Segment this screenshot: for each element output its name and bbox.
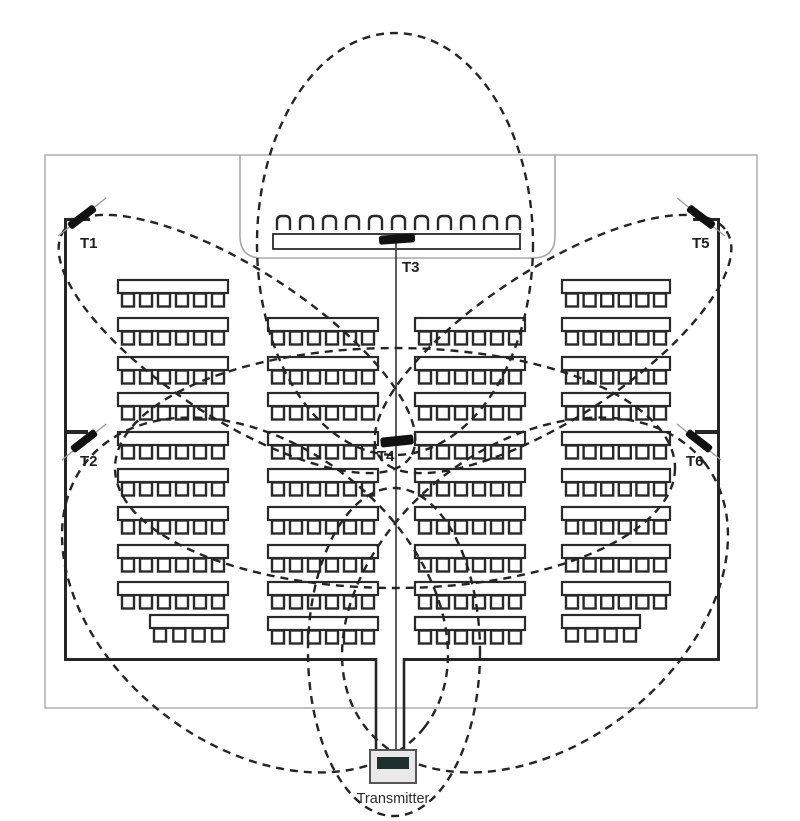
- seat-chair: [362, 332, 374, 345]
- seat-chair: [455, 596, 467, 609]
- seat-chair: [455, 521, 467, 534]
- seat-chair: [601, 332, 613, 345]
- stage-chair: [300, 216, 313, 230]
- seat-chair: [122, 446, 134, 459]
- seat-chair: [419, 371, 431, 384]
- seat-desk: [562, 507, 670, 520]
- seat-chair: [619, 407, 631, 420]
- seat-chair: [308, 483, 320, 496]
- seat-chair: [585, 629, 597, 642]
- seat-chair: [619, 371, 631, 384]
- seat-chair: [308, 559, 320, 572]
- seat-chair: [419, 559, 431, 572]
- seat-chair: [272, 596, 284, 609]
- seat-chair: [326, 521, 338, 534]
- seat-chair: [173, 629, 185, 642]
- seat-chair: [194, 483, 206, 496]
- seat-chair: [290, 371, 302, 384]
- seat-desk: [118, 318, 228, 331]
- seat-chair: [158, 407, 170, 420]
- antenna-t3-label: T3: [402, 259, 420, 276]
- antenna-t6-label: T6: [686, 453, 704, 470]
- seat-chair: [654, 407, 666, 420]
- seat-chair: [491, 596, 503, 609]
- seat-chair: [455, 483, 467, 496]
- seat-desk: [118, 393, 228, 406]
- seat-chair: [566, 294, 578, 307]
- seat-chair: [584, 483, 596, 496]
- seat-chair: [308, 407, 320, 420]
- seat-chair: [154, 629, 166, 642]
- seat-chair: [158, 446, 170, 459]
- seat-chair: [122, 407, 134, 420]
- seat-chair: [140, 483, 152, 496]
- seat-chair: [419, 483, 431, 496]
- seat-chair: [601, 596, 613, 609]
- seat-chair: [584, 332, 596, 345]
- seat-desk: [268, 432, 378, 445]
- seat-chair: [605, 629, 617, 642]
- seat-chair: [509, 559, 521, 572]
- seat-chair: [176, 332, 188, 345]
- seat-chair: [272, 407, 284, 420]
- seat-chair: [122, 371, 134, 384]
- antenna-t2-label: T2: [80, 453, 98, 470]
- transmitter-label: Transmitter: [357, 791, 430, 807]
- seat-chair: [619, 596, 631, 609]
- seat-chair: [619, 559, 631, 572]
- seat-chair: [473, 332, 485, 345]
- seat-chair: [473, 559, 485, 572]
- seat-chair: [636, 332, 648, 345]
- stage-chair: [346, 216, 359, 230]
- antenna-mount-t2: [64, 430, 88, 434]
- seat-chair: [308, 521, 320, 534]
- seat-chair: [158, 521, 170, 534]
- seat-chair: [140, 559, 152, 572]
- seat-chair: [437, 521, 449, 534]
- seat-chair: [654, 521, 666, 534]
- seat-chair: [491, 521, 503, 534]
- seat-chair: [326, 559, 338, 572]
- seat-desk: [562, 545, 670, 558]
- stage-chair: [392, 216, 405, 230]
- seat-chair: [473, 483, 485, 496]
- seat-desk: [562, 469, 670, 482]
- seat-chair: [437, 371, 449, 384]
- seat-chair: [308, 596, 320, 609]
- seat-chair: [419, 596, 431, 609]
- seat-chair: [455, 559, 467, 572]
- seat-chair: [158, 559, 170, 572]
- seat-chair: [491, 559, 503, 572]
- seat-chair: [140, 446, 152, 459]
- room-wall-bottom-right: [404, 658, 720, 661]
- stage-chair: [277, 216, 290, 230]
- seat-desk: [415, 507, 525, 520]
- seat-desk: [562, 582, 670, 595]
- seat-chair: [290, 631, 302, 644]
- seat-chair: [194, 446, 206, 459]
- stage-chair: [438, 216, 451, 230]
- seat-chair: [122, 521, 134, 534]
- seat-chair: [326, 596, 338, 609]
- seat-chair: [272, 483, 284, 496]
- seat-chair: [509, 483, 521, 496]
- seat-chair: [654, 446, 666, 459]
- seat-chair: [601, 294, 613, 307]
- seat-chair: [176, 483, 188, 496]
- seat-chair: [584, 521, 596, 534]
- seat-chair: [158, 332, 170, 345]
- seat-chair: [158, 483, 170, 496]
- seat-chair: [566, 521, 578, 534]
- seat-chair: [509, 596, 521, 609]
- seat-desk: [268, 617, 378, 630]
- seat-chair: [212, 521, 224, 534]
- seat-chair: [272, 631, 284, 644]
- seat-desk: [415, 545, 525, 558]
- seat-chair: [584, 294, 596, 307]
- seat-chair: [419, 631, 431, 644]
- seat-chair: [619, 332, 631, 345]
- seat-chair: [140, 294, 152, 307]
- seat-chair: [212, 483, 224, 496]
- seat-chair: [158, 371, 170, 384]
- seat-desk: [562, 615, 640, 628]
- seat-chair: [654, 294, 666, 307]
- seat-chair: [566, 332, 578, 345]
- seat-chair: [566, 446, 578, 459]
- seat-chair: [122, 332, 134, 345]
- seat-chair: [455, 446, 467, 459]
- seat-chair: [473, 521, 485, 534]
- stage-chair: [323, 216, 336, 230]
- seat-chair: [194, 521, 206, 534]
- seat-chair: [636, 294, 648, 307]
- seat-chair: [122, 559, 134, 572]
- seat-chair: [636, 446, 648, 459]
- seat-chair: [619, 521, 631, 534]
- seat-chair: [290, 446, 302, 459]
- seat-chair: [455, 332, 467, 345]
- auditorium-coverage-diagram: TransmitterT1T2T3T4T5T6: [0, 0, 800, 821]
- seat-chair: [140, 332, 152, 345]
- seat-chair: [566, 629, 578, 642]
- seat-chair: [344, 559, 356, 572]
- seat-desk: [415, 582, 525, 595]
- seat-chair: [326, 371, 338, 384]
- stage-chair: [461, 216, 474, 230]
- seat-chair: [636, 559, 648, 572]
- seat-chair: [344, 483, 356, 496]
- seat-chair: [176, 446, 188, 459]
- antenna-t5-icon: [686, 204, 716, 230]
- seat-desk: [118, 582, 228, 595]
- seat-chair: [326, 332, 338, 345]
- seat-chair: [122, 294, 134, 307]
- seat-chair: [362, 371, 374, 384]
- seat-chair: [437, 407, 449, 420]
- seat-chair: [176, 596, 188, 609]
- seat-chair: [176, 521, 188, 534]
- seat-desk: [415, 318, 525, 331]
- seat-chair: [362, 521, 374, 534]
- seat-chair: [654, 371, 666, 384]
- antenna-mount-t6: [695, 430, 719, 434]
- seat-chair: [272, 371, 284, 384]
- seat-desk: [415, 617, 525, 630]
- seat-chair: [419, 407, 431, 420]
- seat-chair: [344, 446, 356, 459]
- antenna-t4-label: T4: [377, 448, 395, 465]
- seat-chair: [212, 596, 224, 609]
- seat-chair: [601, 371, 613, 384]
- seat-desk: [415, 393, 525, 406]
- seat-desk: [415, 469, 525, 482]
- room-wall-left: [64, 218, 67, 661]
- room-wall-bottom-left: [64, 658, 376, 661]
- seat-chair: [326, 446, 338, 459]
- seat-chair: [455, 371, 467, 384]
- seat-chair: [491, 371, 503, 384]
- seat-chair: [419, 521, 431, 534]
- seat-chair: [290, 483, 302, 496]
- seat-chair: [122, 596, 134, 609]
- stage-chair: [369, 216, 382, 230]
- stage-chair: [507, 216, 520, 230]
- seat-chair: [212, 294, 224, 307]
- seat-chair: [290, 407, 302, 420]
- seat-chair: [473, 371, 485, 384]
- seat-chair: [158, 596, 170, 609]
- seat-chair: [437, 559, 449, 572]
- seat-chair: [636, 483, 648, 496]
- seat-chair: [326, 483, 338, 496]
- antenna-t5-label: T5: [692, 235, 710, 252]
- seat-chair: [140, 371, 152, 384]
- seat-chair: [308, 332, 320, 345]
- coverage-floor-plan-svg: TransmitterT1T2T3T4T5T6: [0, 0, 800, 821]
- seat-chair: [584, 446, 596, 459]
- seat-chair: [158, 294, 170, 307]
- seat-desk: [150, 615, 228, 628]
- seat-chair: [176, 294, 188, 307]
- seat-chair: [491, 332, 503, 345]
- seat-chair: [619, 446, 631, 459]
- seat-chair: [455, 631, 467, 644]
- antenna-t1-icon: [67, 204, 97, 230]
- seat-chair: [176, 371, 188, 384]
- seat-chair: [212, 446, 224, 459]
- seat-chair: [491, 407, 503, 420]
- seat-chair: [290, 596, 302, 609]
- seat-chair: [344, 631, 356, 644]
- seat-desk: [268, 393, 378, 406]
- seat-chair: [326, 407, 338, 420]
- stage-chair: [415, 216, 428, 230]
- seat-chair: [654, 483, 666, 496]
- seat-desk: [268, 318, 378, 331]
- antenna-t4-icon: [380, 434, 414, 447]
- seat-desk: [268, 469, 378, 482]
- seat-chair: [491, 631, 503, 644]
- seat-chair: [362, 407, 374, 420]
- antenna-t1-label: T1: [80, 235, 98, 252]
- seat-chair: [566, 483, 578, 496]
- seat-chair: [344, 521, 356, 534]
- seat-chair: [601, 446, 613, 459]
- seat-chair: [636, 596, 648, 609]
- seat-chair: [566, 596, 578, 609]
- seat-chair: [654, 332, 666, 345]
- seat-chair: [290, 521, 302, 534]
- seat-chair: [624, 629, 636, 642]
- seat-chair: [176, 559, 188, 572]
- seat-chair: [419, 332, 431, 345]
- seat-chair: [122, 483, 134, 496]
- seat-chair: [601, 559, 613, 572]
- seat-chair: [344, 407, 356, 420]
- seat-chair: [272, 559, 284, 572]
- seat-desk: [562, 432, 670, 445]
- seat-chair: [584, 559, 596, 572]
- seat-desk: [118, 469, 228, 482]
- seat-chair: [193, 629, 205, 642]
- seat-chair: [601, 521, 613, 534]
- seat-chair: [654, 596, 666, 609]
- seat-chair: [272, 521, 284, 534]
- transmitter-box-display: [377, 757, 409, 769]
- seat-chair: [194, 371, 206, 384]
- seat-chair: [290, 559, 302, 572]
- seat-chair: [455, 407, 467, 420]
- seat-chair: [194, 332, 206, 345]
- seat-chair: [212, 332, 224, 345]
- seat-chair: [601, 483, 613, 496]
- seat-chair: [290, 332, 302, 345]
- stage-chair: [484, 216, 497, 230]
- seat-chair: [362, 631, 374, 644]
- seat-chair: [584, 596, 596, 609]
- seat-chair: [509, 631, 521, 644]
- seat-desk: [562, 318, 670, 331]
- seat-chair: [140, 596, 152, 609]
- seat-chair: [619, 483, 631, 496]
- seat-chair: [308, 371, 320, 384]
- seat-chair: [437, 446, 449, 459]
- seat-chair: [362, 596, 374, 609]
- seat-chair: [437, 483, 449, 496]
- seat-chair: [491, 483, 503, 496]
- seat-desk: [268, 507, 378, 520]
- seat-desk: [118, 432, 228, 445]
- seat-chair: [344, 371, 356, 384]
- seat-chair: [272, 446, 284, 459]
- seat-chair: [509, 371, 521, 384]
- seat-chair: [509, 521, 521, 534]
- seat-chair: [194, 294, 206, 307]
- seat-chair: [194, 559, 206, 572]
- seat-desk: [118, 280, 228, 293]
- seat-desk: [562, 280, 670, 293]
- seat-desk: [268, 545, 378, 558]
- seat-chair: [326, 631, 338, 644]
- seat-chair: [194, 596, 206, 609]
- seat-chair: [654, 559, 666, 572]
- seat-desk: [118, 545, 228, 558]
- seat-chair: [212, 629, 224, 642]
- seat-chair: [509, 407, 521, 420]
- seat-chair: [619, 294, 631, 307]
